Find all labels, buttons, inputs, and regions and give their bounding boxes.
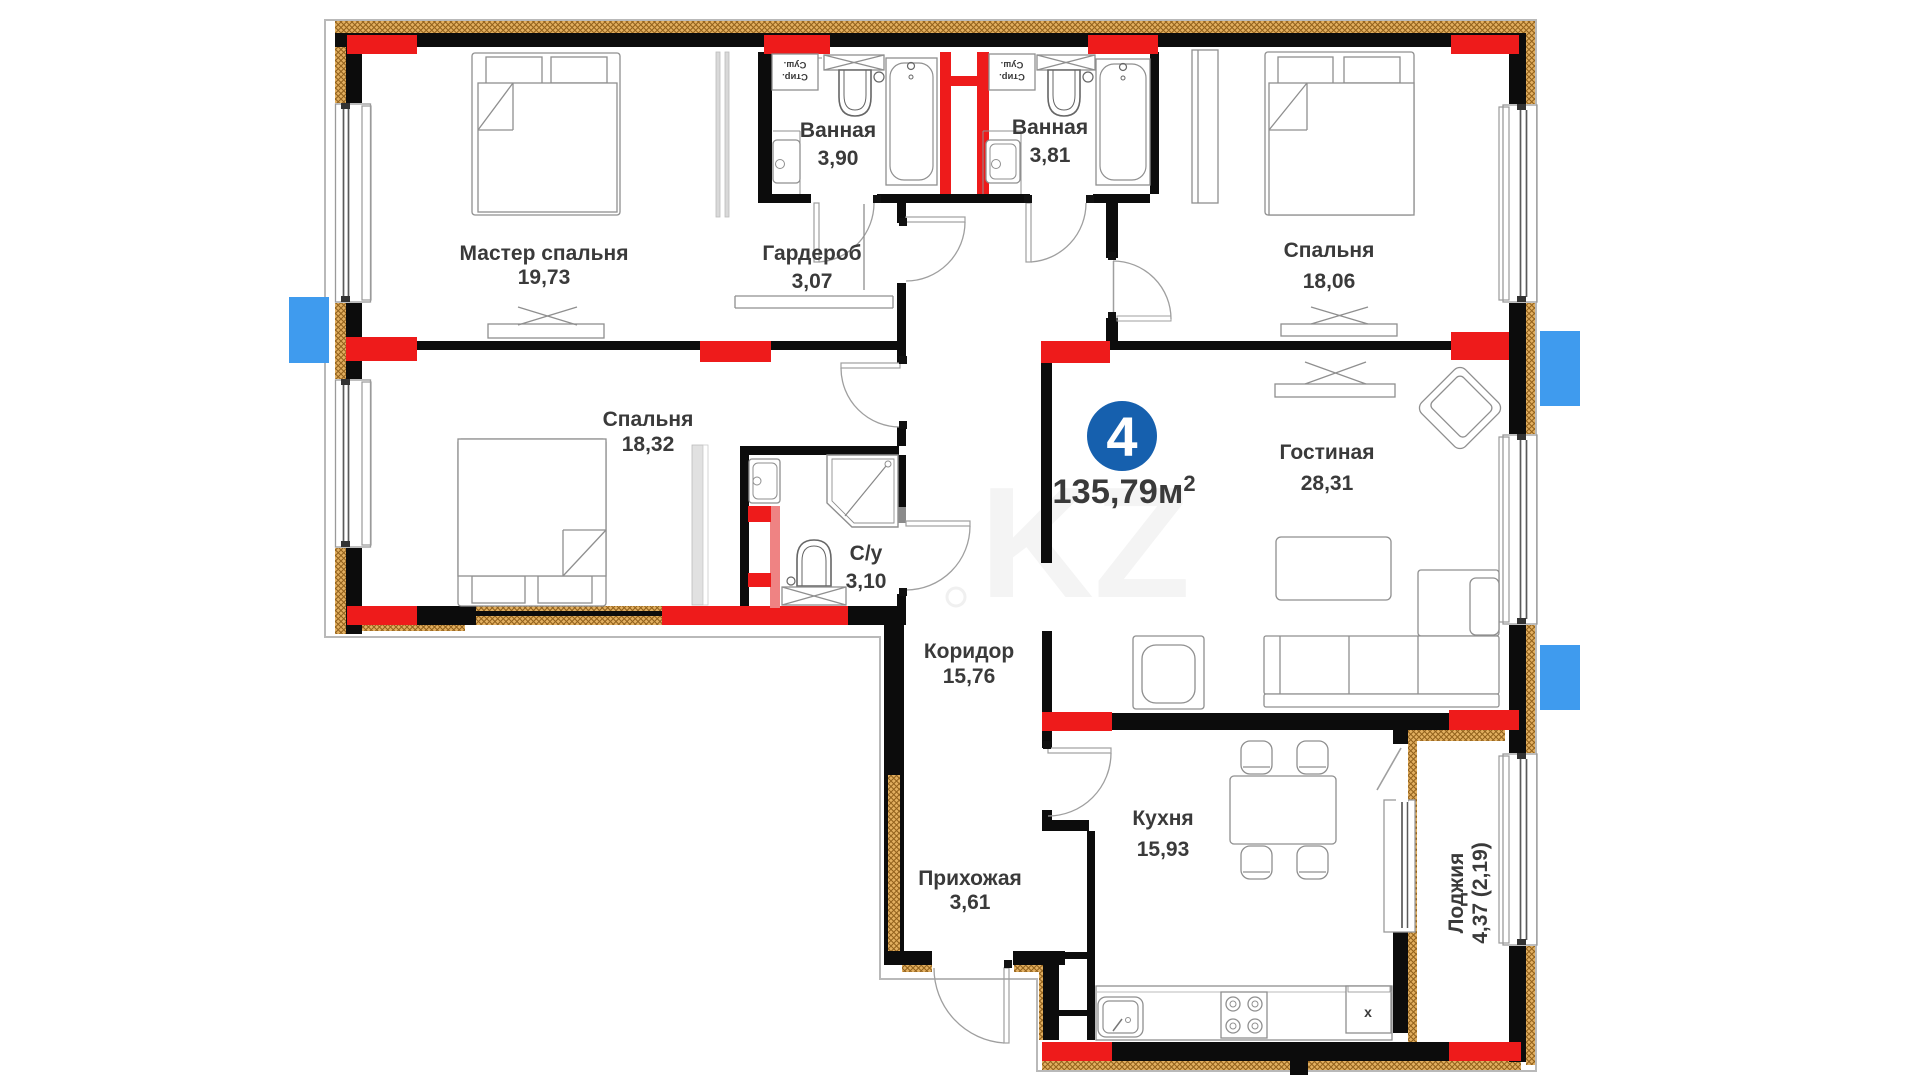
svg-text:Прихожая: Прихожая — [918, 867, 1022, 890]
svg-text:Ванная: Ванная — [800, 119, 876, 142]
svg-text:4,37 (2,19): 4,37 (2,19) — [1469, 842, 1492, 944]
svg-text:Стир.: Стир. — [782, 71, 808, 82]
svg-text:Гардероб: Гардероб — [762, 242, 861, 265]
svg-text:Ванная: Ванная — [1012, 116, 1088, 139]
svg-text:15,76: 15,76 — [943, 665, 996, 688]
svg-text:Спальня: Спальня — [603, 408, 694, 431]
svg-text:Стир.: Стир. — [999, 71, 1025, 82]
svg-text:135,79м2: 135,79м2 — [1052, 471, 1195, 511]
svg-text:Суш.: Суш. — [1001, 59, 1024, 70]
svg-text:С/у: С/у — [850, 542, 883, 565]
svg-text:15,93: 15,93 — [1137, 838, 1190, 861]
svg-text:3,10: 3,10 — [846, 570, 887, 593]
svg-text:3,07: 3,07 — [792, 270, 833, 293]
svg-text:Спальня: Спальня — [1284, 239, 1375, 262]
svg-text:Кухня: Кухня — [1132, 807, 1193, 830]
svg-text:x: x — [1364, 1004, 1372, 1020]
svg-text:3,90: 3,90 — [818, 147, 859, 170]
svg-text:4: 4 — [1106, 405, 1137, 468]
svg-text:Суш.: Суш. — [784, 59, 807, 70]
svg-text:Коридор: Коридор — [924, 640, 1014, 663]
svg-text:Гостиная: Гостиная — [1280, 441, 1375, 464]
svg-text:3,61: 3,61 — [950, 891, 991, 914]
svg-text:28,31: 28,31 — [1301, 472, 1354, 495]
svg-text:18,06: 18,06 — [1303, 270, 1356, 293]
svg-text:18,32: 18,32 — [622, 433, 675, 456]
svg-text:19,73: 19,73 — [518, 266, 571, 289]
svg-text:Мастер спальня: Мастер спальня — [460, 242, 629, 265]
svg-text:3,81: 3,81 — [1030, 144, 1071, 167]
svg-text:Лоджия: Лоджия — [1445, 853, 1468, 934]
